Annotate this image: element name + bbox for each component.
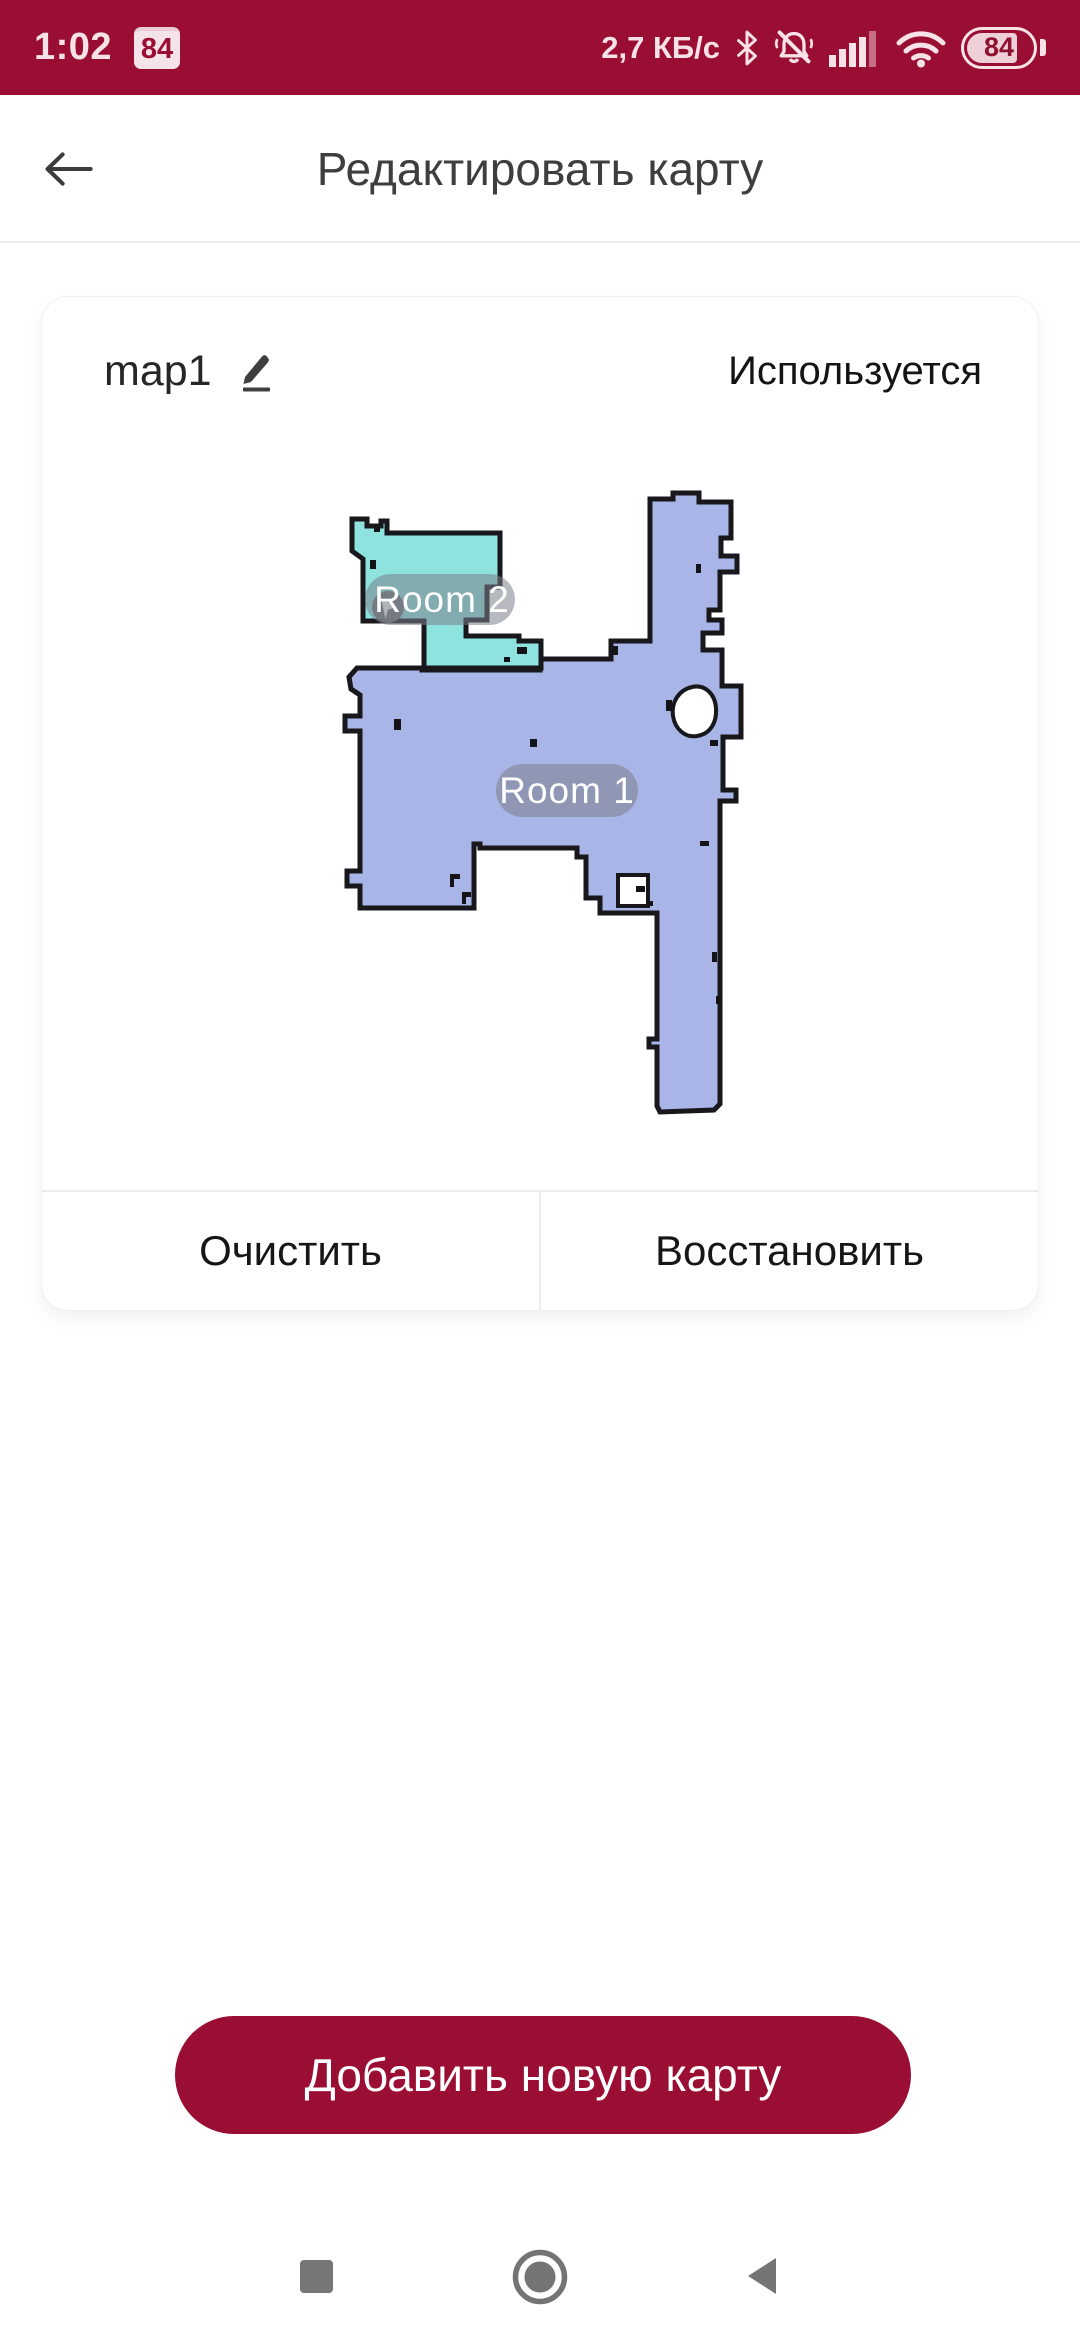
room-1-label: Room 1 [499, 770, 635, 811]
bluetooth-icon [735, 30, 759, 66]
clock: 1:02 [34, 26, 112, 69]
nav-recents-icon[interactable] [300, 2260, 333, 2293]
bell-muted-icon [774, 28, 814, 68]
nav-back-icon[interactable] [740, 2254, 784, 2298]
signal-icon [829, 29, 881, 67]
screen: 1:02 84 2,7 КБ/с [0, 0, 1080, 2340]
edit-pencil-icon[interactable] [236, 349, 272, 393]
floor-map: Room 2 Room 1 [230, 440, 750, 1140]
nav-home-icon[interactable] [509, 2246, 571, 2308]
app-header: Редактировать карту [0, 95, 1080, 243]
map-card: map1 Используется [42, 297, 1038, 1310]
clear-map-button[interactable]: Очистить [42, 1192, 539, 1310]
page-title: Редактировать карту [0, 95, 1080, 243]
status-bar: 1:02 84 2,7 КБ/с [0, 0, 1080, 95]
wifi-icon [896, 28, 946, 68]
map-obstacle-blob [673, 686, 716, 736]
network-speed: 2,7 КБ/с [601, 30, 720, 66]
map-card-actions: Очистить Восстановить [42, 1190, 1038, 1310]
map-card-header: map1 Используется [104, 341, 982, 401]
room-2-label: Room 2 [374, 579, 510, 620]
battery-icon: 84 [961, 27, 1046, 69]
battery-percent: 84 [984, 32, 1014, 63]
map-name: map1 [104, 347, 212, 396]
status-bar-right: 2,7 КБ/с [601, 27, 1046, 69]
restore-map-button[interactable]: Восстановить [541, 1192, 1038, 1310]
battery-saver-badge-icon: 84 [134, 27, 180, 69]
status-bar-left: 1:02 84 [34, 26, 180, 69]
add-new-map-button[interactable]: Добавить новую карту [175, 2016, 911, 2134]
map-status-label: Используется [728, 349, 982, 394]
